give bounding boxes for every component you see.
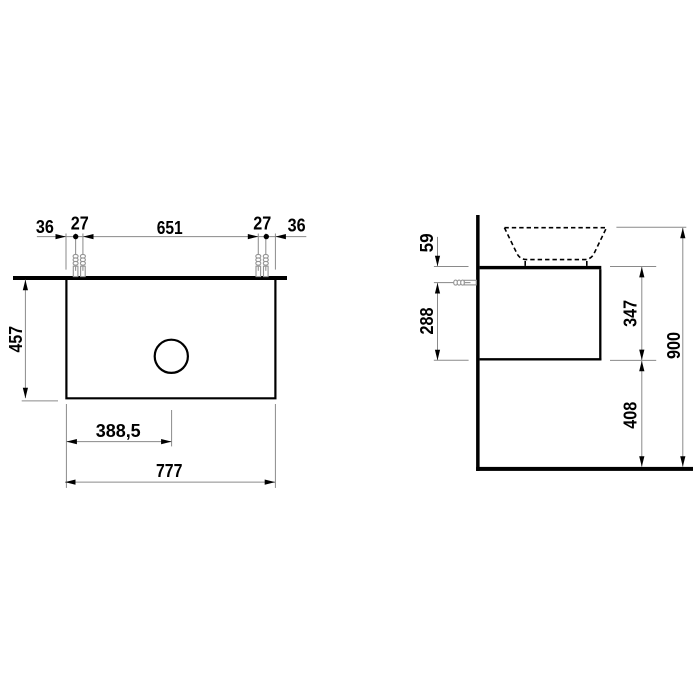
svg-text:59: 59 <box>416 233 437 252</box>
svg-text:900: 900 <box>663 332 684 359</box>
svg-text:388,5: 388,5 <box>96 420 141 441</box>
svg-text:777: 777 <box>156 460 183 481</box>
svg-text:288: 288 <box>416 308 437 335</box>
svg-text:27: 27 <box>253 212 271 233</box>
svg-text:27: 27 <box>71 212 89 233</box>
svg-text:651: 651 <box>157 217 183 238</box>
svg-text:36: 36 <box>288 215 306 236</box>
svg-text:408: 408 <box>620 402 641 429</box>
svg-text:36: 36 <box>36 216 54 237</box>
svg-text:457: 457 <box>5 326 26 353</box>
svg-text:347: 347 <box>620 300 641 327</box>
